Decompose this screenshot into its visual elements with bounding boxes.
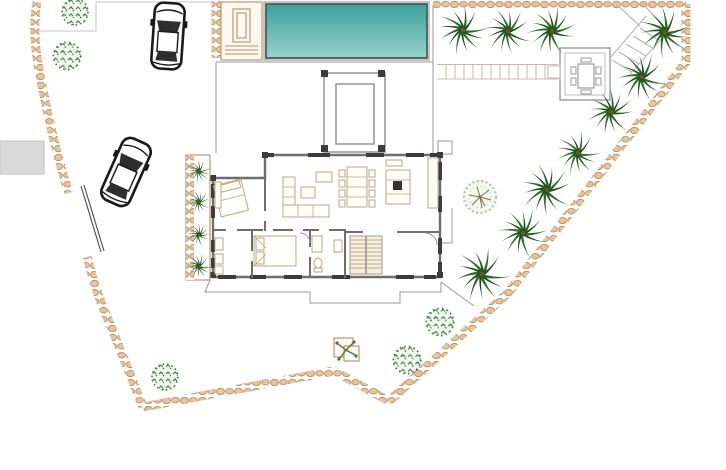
coffee-table: [301, 187, 315, 198]
entrance-porch: [321, 70, 385, 152]
paved-walkway: [437, 65, 558, 80]
gazebo-table: [578, 64, 594, 88]
staircase: [350, 236, 382, 274]
neighbor-gray-area: [0, 141, 44, 174]
porch-column: [321, 70, 328, 77]
porch-column: [378, 145, 385, 152]
site-plan-drawing: [0, 0, 726, 470]
furniture: [214, 158, 438, 274]
car-suv: [95, 134, 157, 211]
closets: [215, 238, 223, 274]
site-plan-canvas: [0, 0, 726, 470]
garden-bush: [426, 308, 453, 335]
terrace-outline: [205, 280, 441, 303]
stone-wall-left-lower: [87, 257, 143, 407]
garden-bush: [53, 42, 80, 69]
bed-guest: [254, 236, 296, 266]
dining-table: [339, 167, 375, 207]
garden-bush: [62, 0, 88, 25]
stone-wall-bottom: [143, 371, 389, 407]
palm-tree: [509, 154, 584, 229]
palm-tree: [434, 1, 492, 60]
pool-house: [221, 2, 262, 60]
round-tree-layer: [464, 181, 496, 213]
porch-column: [378, 70, 385, 77]
kitchen: [386, 158, 438, 208]
swimming-pool: [264, 2, 429, 60]
corner-steps: [610, 2, 664, 74]
sofa-set: [283, 172, 332, 217]
car-layer: [95, 2, 189, 211]
round-tree: [464, 181, 496, 213]
pool-terrace: [216, 2, 433, 153]
garden-bush: [152, 364, 178, 390]
terrace-corner-cut: [441, 282, 474, 306]
palm-tree: [474, 0, 541, 66]
gazebo: [548, 48, 610, 100]
garden-bush: [393, 346, 420, 373]
car-sedan: [147, 2, 189, 70]
porch-column: [321, 145, 328, 152]
cooktop: [393, 181, 402, 190]
house: [205, 141, 474, 306]
bathroom-fixtures: [312, 236, 342, 272]
planter-box: [334, 338, 359, 361]
